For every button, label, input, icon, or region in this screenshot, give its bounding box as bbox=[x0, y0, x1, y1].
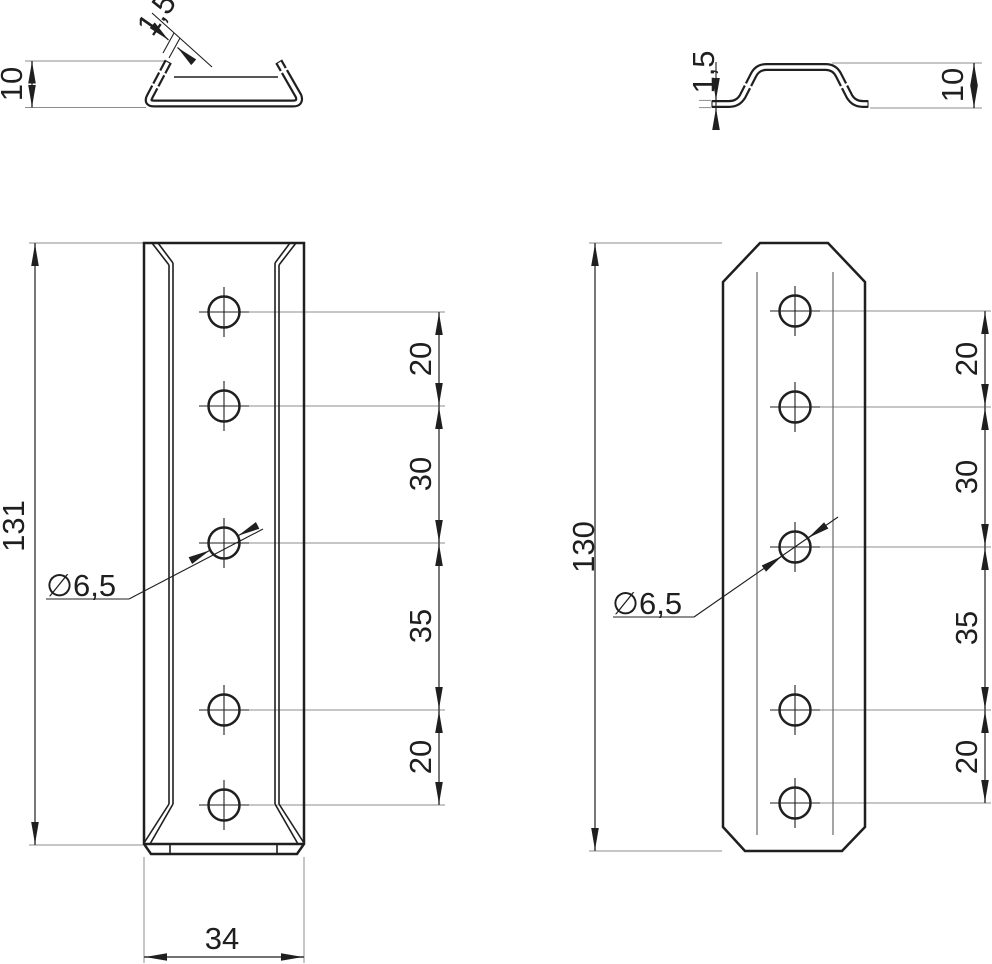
hole-crosshairs bbox=[770, 286, 820, 828]
drawing-canvas: 10 1,5 bbox=[0, 0, 992, 964]
hole-diameter-label: ∅6,5 bbox=[46, 568, 116, 603]
left-plate-front-view: 131 34 20 30 35 20 ∅6, bbox=[0, 243, 445, 963]
right-profile-view: 1,5 10 bbox=[686, 50, 982, 128]
length-dimension: 131 bbox=[0, 243, 35, 845]
sheet-section-core bbox=[149, 62, 299, 104]
width-dimension: 34 bbox=[144, 921, 304, 957]
sheet-section-outline bbox=[149, 62, 299, 104]
dim-plate-length-label: 131 bbox=[0, 500, 31, 552]
dim-profile-height-label: 10 bbox=[0, 67, 29, 101]
hole-pattern bbox=[770, 286, 820, 828]
dim-spacing-label: 30 bbox=[403, 457, 438, 491]
dim-profile-height-label: 10 bbox=[935, 68, 970, 102]
hole-spacing-chain: 20 30 35 20 bbox=[403, 312, 439, 805]
height-dimension: 10 bbox=[935, 63, 974, 108]
technical-drawing-sheet: 10 1,5 bbox=[0, 0, 992, 964]
dim-spacing-label: 35 bbox=[403, 609, 438, 643]
right-plate-front-view: 130 20 30 35 20 ∅6,5 bbox=[566, 243, 991, 851]
hole-diameter-callout: ∅6,5 bbox=[612, 517, 838, 621]
dim-spacing-label: 20 bbox=[949, 740, 984, 774]
hole-spacing-chain: 20 30 35 20 bbox=[949, 311, 985, 803]
dim-profile-thickness-label: 1,5 bbox=[130, 0, 183, 42]
dim-spacing-label: 30 bbox=[949, 460, 984, 494]
thickness-dimension: 1,5 bbox=[130, 0, 212, 67]
dim-spacing-label: 35 bbox=[949, 611, 984, 645]
dim-spacing-label: 20 bbox=[403, 342, 438, 376]
left-profile-view: 10 1,5 bbox=[0, 0, 299, 107]
dim-plate-length-label: 130 bbox=[566, 521, 601, 573]
dim-profile-thickness-label: 1,5 bbox=[686, 50, 721, 93]
dim-spacing-label: 20 bbox=[949, 342, 984, 376]
thickness-dimension: 1,5 bbox=[686, 50, 721, 128]
dim-spacing-label: 20 bbox=[403, 740, 438, 774]
edge-caps bbox=[165, 60, 283, 64]
length-dimension: 130 bbox=[566, 243, 601, 851]
hole-diameter-label: ∅6,5 bbox=[612, 586, 682, 621]
hole-diameter-callout: ∅6,5 bbox=[46, 528, 263, 603]
bend-tangent-ticks bbox=[743, 83, 849, 88]
bend-tangent-ticks bbox=[151, 68, 289, 89]
height-dimension: 10 bbox=[0, 61, 32, 108]
dim-plate-width-label: 34 bbox=[205, 921, 239, 956]
